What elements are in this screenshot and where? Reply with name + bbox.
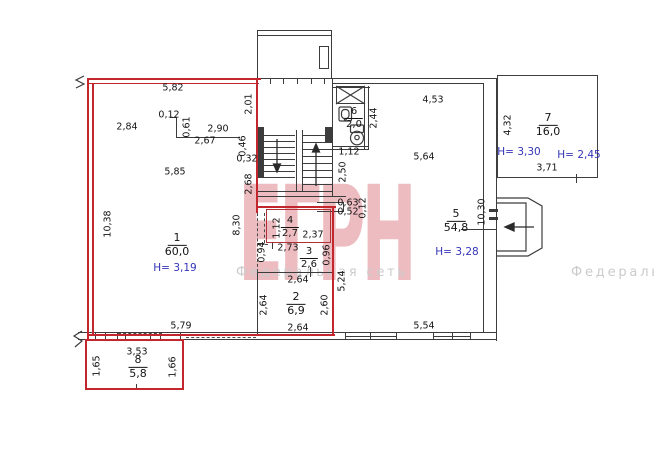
room-area: 5,8 xyxy=(129,368,148,381)
dimension-label: 2,44 xyxy=(369,107,380,128)
red-boundary-line xyxy=(332,206,334,336)
room-area: 16,0 xyxy=(536,126,561,139)
room-area: 6,9 xyxy=(287,305,306,318)
dimension-label: 3,71 xyxy=(536,163,557,174)
room-label-5: 554,8 xyxy=(444,208,469,234)
room-label-2: 26,9 xyxy=(287,291,306,317)
entrance-arrow-icon xyxy=(505,223,534,231)
dimension-label: 5,24 xyxy=(337,270,348,291)
room-area: 54,8 xyxy=(444,222,469,235)
room-label-7: 716,0 xyxy=(536,112,561,138)
height-label: H= 2,45 xyxy=(557,149,600,161)
dimension-label: 2,64 xyxy=(259,294,270,315)
dimension-label: 5,54 xyxy=(413,321,434,332)
dimension-label: 5,85 xyxy=(164,167,185,178)
dimension-label: 1,12 xyxy=(338,147,359,158)
room-number: 4 xyxy=(281,215,299,228)
room-area: 2,7 xyxy=(281,228,299,240)
height-label: H= 3,28 xyxy=(435,246,478,258)
room-label-3: 32,6 xyxy=(300,246,318,270)
dimension-label: 5,82 xyxy=(162,83,183,94)
dimension-label: 0,94 xyxy=(257,241,268,262)
room-label-6: 62,0 xyxy=(345,106,363,130)
dimension-label: 4,32 xyxy=(503,114,514,135)
red-boundary-line xyxy=(256,78,258,213)
dimension-label: 0,12 xyxy=(358,197,369,218)
dimension-label: 2,84 xyxy=(116,122,137,133)
room-number: 8 xyxy=(129,354,148,368)
room-number: 5 xyxy=(447,208,466,222)
red-boundary-line xyxy=(87,78,261,80)
dimension-label: 2,60 xyxy=(320,294,331,315)
dimension-label: 2,37 xyxy=(302,230,323,241)
dimension-label: 0,61 xyxy=(182,116,193,137)
room-label-4: 42,7 xyxy=(281,215,299,239)
dimension-label: 1,65 xyxy=(92,355,103,376)
dimension-label: 2,64 xyxy=(287,323,308,334)
dimension-label: 2,01 xyxy=(244,93,255,114)
dimension-label: 2,73 xyxy=(277,243,298,254)
room-number: 3 xyxy=(300,246,318,259)
room-area: 2,6 xyxy=(300,259,318,271)
dimension-label: 1,66 xyxy=(168,356,179,377)
dimension-label: 10,30 xyxy=(477,198,488,225)
dimension-label: 2,64 xyxy=(287,275,308,286)
dimension-label: 2,90 xyxy=(207,124,228,135)
room-number: 2 xyxy=(287,291,306,305)
height-label: H= 3,30 xyxy=(497,146,540,158)
room-number: 1 xyxy=(168,232,187,246)
floor-plan: ЕГРН Федеральная сеть Федеральная сеть xyxy=(0,0,654,465)
dimension-label: 5,79 xyxy=(170,321,191,332)
room-label-8: 85,8 xyxy=(129,354,148,380)
stair-arrow-down-icon xyxy=(274,139,281,172)
red-boundary-line xyxy=(88,334,335,336)
dimension-label: 2,67 xyxy=(194,136,215,147)
break-line-icon xyxy=(76,76,84,88)
dimension-label: 0,32 xyxy=(236,154,257,165)
room-number: 6 xyxy=(345,106,363,119)
dimension-label: 5,64 xyxy=(413,152,434,163)
dimension-label: 8,30 xyxy=(232,214,243,235)
break-line-icon xyxy=(74,331,82,347)
room-area: 2,0 xyxy=(345,119,363,131)
room-label-1: 160,0 xyxy=(165,232,190,258)
room-area: 60,0 xyxy=(165,246,190,259)
dimension-label: 2,50 xyxy=(338,161,349,182)
red-boundary-line xyxy=(92,84,94,335)
height-label: H= 3,19 xyxy=(153,262,196,274)
red-boundary-line xyxy=(256,206,336,208)
dimension-label: 2,68 xyxy=(244,173,255,194)
dimension-label: 10,38 xyxy=(103,210,114,237)
stair-arrow-up-icon xyxy=(313,144,320,186)
room-number: 7 xyxy=(539,112,558,126)
red-boundary-line xyxy=(87,78,89,340)
dimension-label: 4,53 xyxy=(422,95,443,106)
dimension-label: 0,12 xyxy=(158,110,179,121)
vent-shaft-icon xyxy=(336,86,365,104)
dimension-label: 0,96 xyxy=(322,244,333,265)
dimension-label: 0,52 xyxy=(337,207,358,218)
